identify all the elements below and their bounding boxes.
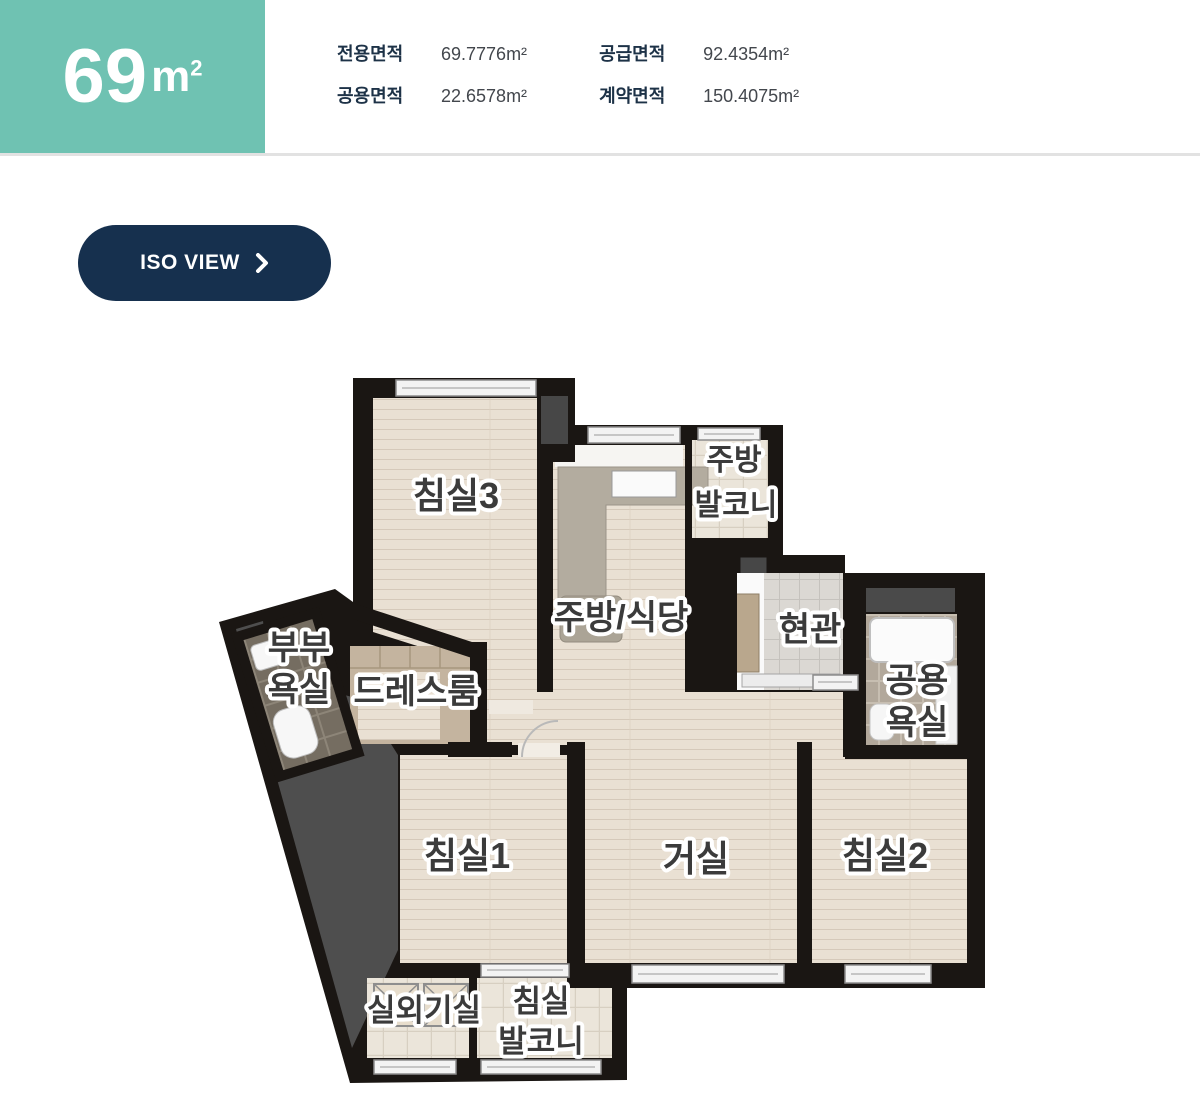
room-label-living: 거실 bbox=[663, 838, 729, 879]
shaft-bedroom3-inset bbox=[541, 396, 568, 444]
room-label-common-bath-2: 욕실 bbox=[886, 704, 949, 742]
room-label-entrance: 현관 bbox=[779, 611, 842, 649]
room-label-dressroom: 드레스룸 bbox=[353, 673, 478, 711]
room-label-master-bath-1: 부부 bbox=[268, 629, 331, 667]
room-label-common-bath-1: 공용 bbox=[886, 662, 949, 700]
room-label-bedroom1: 침실1 bbox=[424, 835, 510, 876]
room-label-bedroom2: 침실2 bbox=[842, 835, 928, 876]
room-label-kitchen-balcony-2: 발코니 bbox=[695, 489, 778, 522]
room-label-outdoor-unit: 실외기실 bbox=[367, 993, 481, 1028]
room-label-bedroom3: 침실3 bbox=[413, 475, 499, 516]
room-label-master-bath-2: 욕실 bbox=[268, 671, 331, 709]
room-label-kitchen-balcony-1: 주방 bbox=[706, 444, 762, 477]
room-label-kitchen-dining: 주방/식당 bbox=[554, 599, 689, 637]
room-label-bedroom-balcony-1: 침실 bbox=[512, 984, 569, 1019]
room-label-bedroom-balcony-2: 발코니 bbox=[498, 1024, 584, 1059]
floorplan-image: 침실3 주방 발코니 주방/식당 현관 부부 욕실 드레스룸 공용 욕실 침실1… bbox=[0, 0, 1200, 1101]
floor-living bbox=[585, 700, 797, 963]
